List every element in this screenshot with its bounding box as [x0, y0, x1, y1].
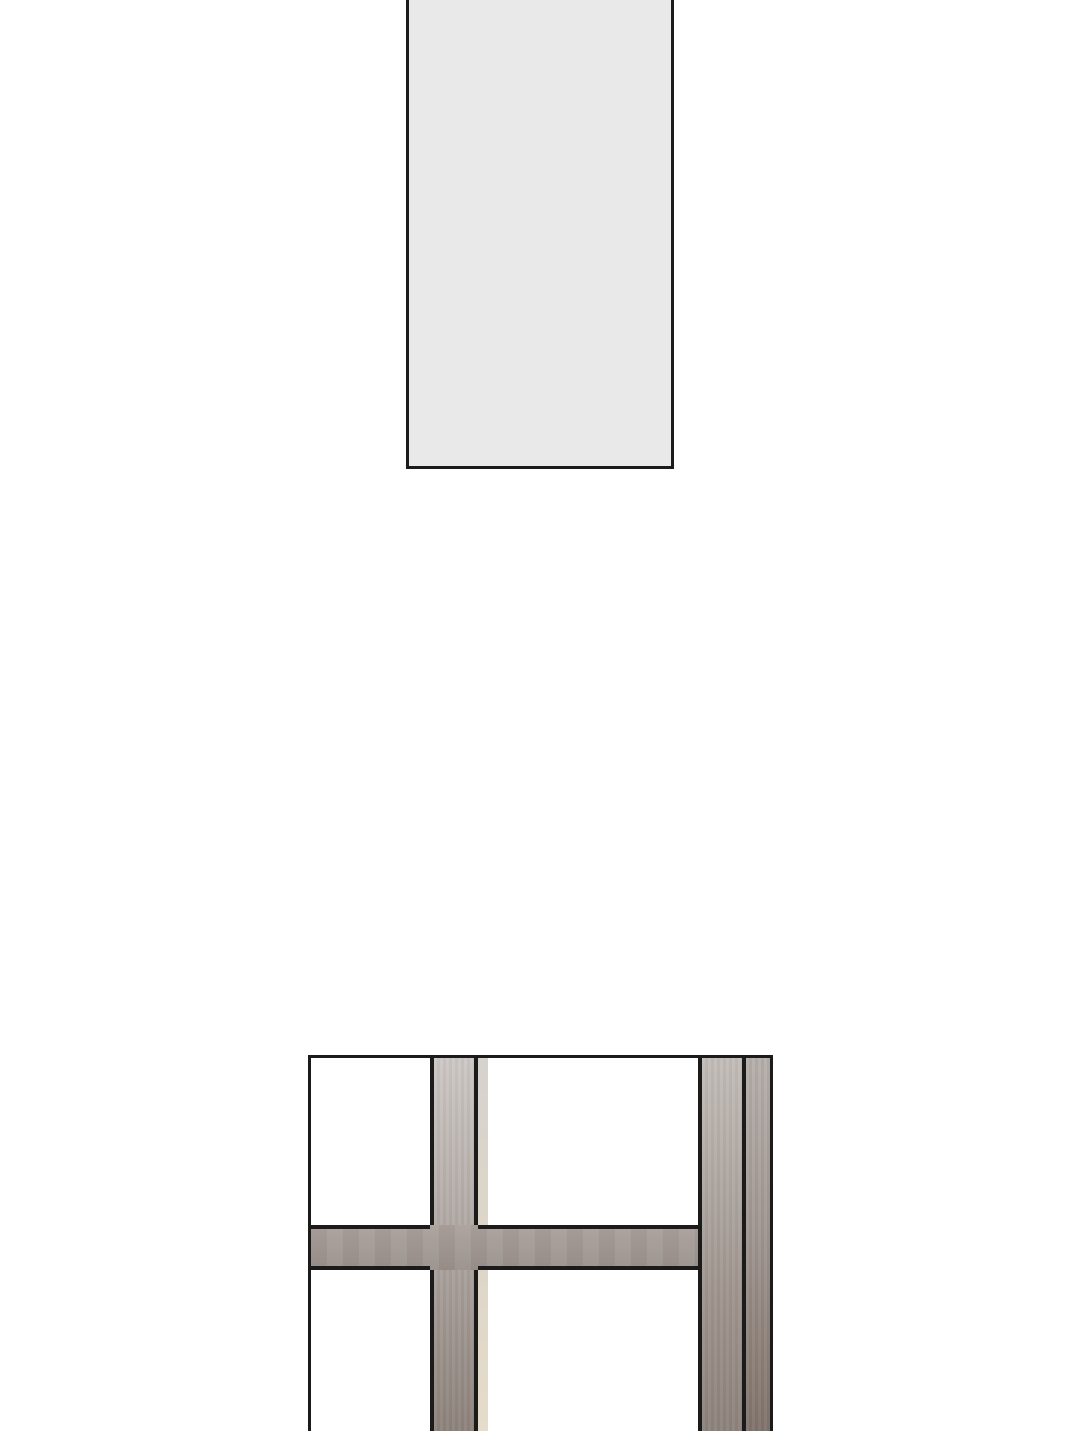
window-frame-line	[430, 1270, 434, 1431]
window-frame-line	[311, 1266, 430, 1270]
window-frame-highlight-strip	[478, 1058, 488, 1225]
window-transom-bar	[311, 1225, 702, 1270]
window-frame-highlight-strip	[478, 1270, 488, 1431]
window-frame-line	[478, 1225, 698, 1229]
window-frame-line	[430, 1058, 434, 1225]
window-right-mullion	[698, 1058, 746, 1431]
window-frame-line	[478, 1266, 698, 1270]
window-frame-line	[311, 1225, 430, 1229]
panel-window-frame	[308, 1055, 773, 1431]
window-right-edge-strip	[746, 1058, 770, 1431]
panel-empty-gray	[406, 0, 674, 469]
